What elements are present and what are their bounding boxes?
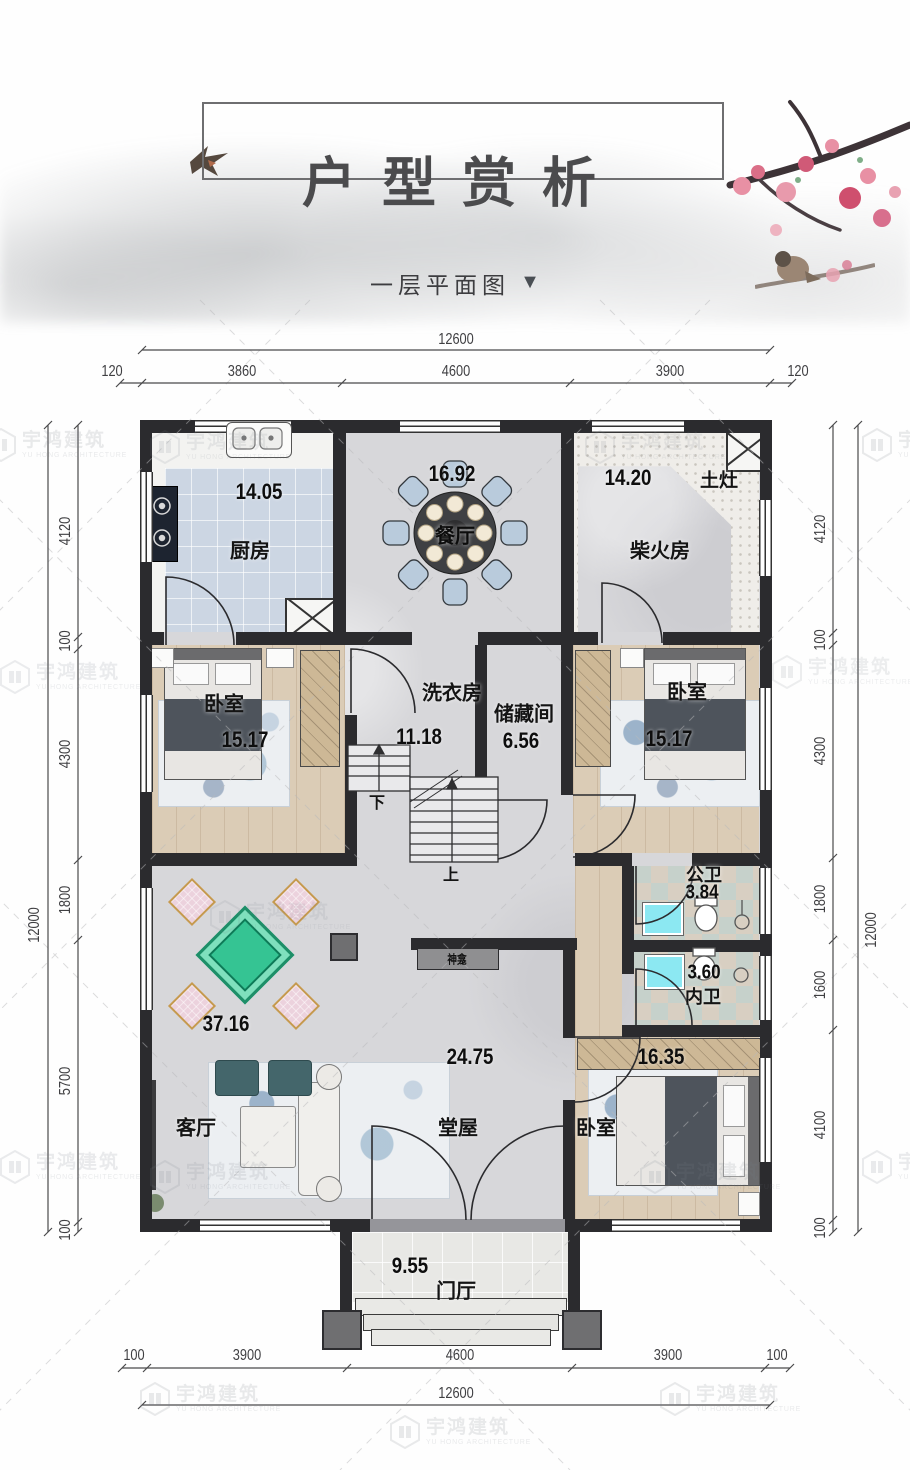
kitchen-sink — [226, 422, 292, 458]
wall — [561, 645, 573, 795]
label-earthen-stove: 土灶 — [700, 466, 738, 493]
yuhong-logo-icon — [862, 428, 892, 462]
dim-seg: 4300 — [57, 740, 75, 768]
dim-total-left: 12000 — [26, 907, 44, 943]
dim-seg: 3900 — [654, 1347, 682, 1365]
stair-label-up: 上 — [443, 861, 459, 885]
yuhong-logo-icon — [772, 655, 802, 689]
wall — [622, 1025, 772, 1037]
window — [759, 688, 772, 790]
window — [759, 956, 772, 1020]
yuhong-logo-icon — [0, 1150, 30, 1184]
blanket — [665, 1077, 717, 1185]
column — [330, 933, 358, 961]
watermark: 宇鸿建筑YU HONG ARCHITECTURE — [390, 1415, 531, 1449]
dim-total-bottom: 12600 — [438, 1385, 474, 1403]
dim-seg: 100 — [812, 629, 830, 650]
window — [400, 420, 500, 433]
dim-seg: 120 — [101, 363, 122, 381]
dim-seg: 120 — [787, 363, 808, 381]
room-label-storage: 储藏间 — [494, 698, 554, 727]
room-label-porch: 门厅 — [436, 1275, 476, 1304]
dim-seg: 3900 — [656, 363, 684, 381]
dim-seg: 100 — [57, 630, 75, 651]
room-label-bedroom-left: 卧室 — [204, 688, 244, 717]
window — [759, 500, 772, 576]
wall — [140, 853, 345, 866]
nightstand — [620, 648, 644, 668]
wall — [333, 420, 346, 645]
yuhong-logo-icon — [660, 1382, 690, 1416]
dim-seg: 1800 — [57, 886, 75, 914]
yuhong-logo-icon — [0, 660, 30, 694]
pillow — [173, 663, 209, 685]
dim-seg: 1800 — [812, 885, 830, 913]
room-label-living: 客厅 — [176, 1112, 216, 1141]
porch-step — [371, 1329, 551, 1346]
bed — [644, 648, 746, 780]
yuhong-logo-icon — [0, 428, 16, 462]
headboard — [165, 649, 261, 660]
room-label-bedroom-right: 卧室 — [667, 676, 707, 705]
wall — [140, 632, 164, 645]
dim-seg: 100 — [766, 1347, 787, 1365]
side-table — [316, 1064, 342, 1090]
room-label-dining: 餐厅 — [435, 520, 475, 549]
dim-seg: 4120 — [57, 517, 75, 545]
room-label-bedroom-bottom: 卧室 — [576, 1112, 616, 1141]
dim-seg: 3860 — [228, 363, 256, 381]
window — [140, 888, 153, 1010]
room-area-firewood: 14.20 — [605, 465, 652, 491]
wall — [561, 420, 574, 645]
watermark: 宇鸿建筑YU HONG ARCHITECTURE — [772, 655, 910, 689]
corridor-wood-floor — [575, 866, 622, 1030]
wall — [340, 1232, 352, 1312]
dim-seg: 100 — [812, 1217, 830, 1238]
wall — [345, 715, 357, 866]
floorplan-page: 户型赏析 一层平面图 ▼ — [0, 0, 910, 1470]
porch-column — [322, 1310, 362, 1350]
armchair — [215, 1060, 259, 1096]
dim-seg: 4120 — [812, 515, 830, 543]
dim-seg: 1600 — [812, 971, 830, 999]
room-area-bedroom-left: 15.17 — [222, 727, 269, 753]
yuhong-logo-icon — [862, 1150, 892, 1184]
wall — [568, 1232, 580, 1312]
room-area-bedroom-bottom: 16.35 — [638, 1044, 685, 1070]
window — [612, 1219, 740, 1232]
bathroom-sink — [643, 903, 683, 935]
room-label-kitchen: 厨房 — [230, 535, 270, 564]
dim-seg: 4100 — [812, 1111, 830, 1139]
room-area-bath-public: 3.84 — [685, 882, 718, 905]
watermark: 宇鸿建筑YU HONG ARCHITECTURE — [0, 428, 127, 462]
watermark: 宇鸿建筑YU HONG ARCHITECTURE — [862, 1150, 910, 1184]
nightstand — [150, 648, 174, 668]
wall — [475, 645, 487, 800]
nightstand — [266, 648, 294, 668]
wall — [622, 952, 634, 974]
pillow — [723, 1085, 745, 1127]
dim-seg: 4600 — [442, 363, 470, 381]
wardrobe — [575, 650, 611, 767]
bed — [616, 1076, 760, 1186]
dim-seg: 100 — [57, 1219, 75, 1240]
window — [140, 472, 153, 562]
watermark: 宇鸿建筑YU HONG ARCHITECTURE — [0, 660, 141, 694]
room-area-dining: 16.92 — [429, 461, 476, 487]
headboard — [748, 1077, 759, 1185]
bathroom-sink — [645, 955, 684, 989]
wall — [236, 632, 412, 645]
wall — [478, 632, 598, 645]
porch-column — [562, 1310, 602, 1350]
room-area-kitchen: 14.05 — [236, 479, 283, 505]
window — [759, 1058, 772, 1162]
headboard — [645, 649, 745, 660]
room-area-hall: 24.75 — [447, 1044, 494, 1070]
dim-seg: 4300 — [812, 737, 830, 765]
room-area-storage: 6.56 — [503, 728, 539, 754]
window — [140, 695, 153, 792]
label-shrine: 神龛 — [447, 951, 466, 968]
wall — [575, 853, 632, 866]
watermark: 宇鸿建筑YU HONG ARCHITECTURE — [140, 1382, 281, 1416]
dim-seg: 100 — [123, 1347, 144, 1365]
wall — [622, 940, 772, 952]
dim-total-right: 12000 — [863, 912, 881, 948]
kitchen-cabinet — [285, 598, 339, 636]
room-label-bath-private: 内卫 — [685, 983, 721, 1009]
watermark: 宇鸿建筑YU HONG ARCHITECTURE — [660, 1382, 801, 1416]
room-label-firewood: 柴火房 — [630, 535, 690, 564]
room-area-bedroom-right: 15.17 — [646, 726, 693, 752]
pillow — [723, 1135, 745, 1177]
armchair — [268, 1060, 312, 1096]
dim-seg: 3900 — [233, 1347, 261, 1365]
side-table — [316, 1176, 342, 1202]
room-area-bath-private: 3.60 — [687, 962, 720, 985]
dim-total-top: 12600 — [438, 331, 474, 349]
yuhong-logo-icon — [140, 1382, 170, 1416]
wall — [563, 950, 575, 1038]
window — [592, 420, 684, 433]
room-area-living: 37.16 — [203, 1011, 250, 1037]
room-area-laundry: 11.18 — [396, 724, 442, 750]
subtitle-arrow: ▼ — [520, 271, 540, 294]
room-area-porch: 9.55 — [392, 1253, 428, 1279]
stair-label-down: 下 — [369, 789, 385, 813]
room-label-hall: 堂屋 — [438, 1112, 478, 1141]
window — [759, 868, 772, 934]
watermark: 宇鸿建筑YU HONG ARCHITECTURE — [862, 428, 910, 462]
wall — [563, 1100, 575, 1219]
page-title: 户型赏析 — [302, 139, 622, 218]
nightstand — [738, 1192, 760, 1216]
wall — [663, 632, 772, 645]
room-label-laundry: 洗衣房 — [422, 677, 482, 706]
yuhong-logo-icon — [390, 1415, 420, 1449]
watermark: 宇鸿建筑YU HONG ARCHITECTURE — [0, 1150, 141, 1184]
coffee-table — [240, 1106, 296, 1168]
porch-threshold — [352, 1219, 568, 1232]
dim-seg: 5700 — [57, 1067, 75, 1095]
subtitle: 一层平面图 — [370, 266, 510, 300]
dim-seg: 4600 — [446, 1347, 474, 1365]
wardrobe — [300, 650, 340, 767]
pillow — [215, 663, 251, 685]
window — [200, 1219, 330, 1232]
